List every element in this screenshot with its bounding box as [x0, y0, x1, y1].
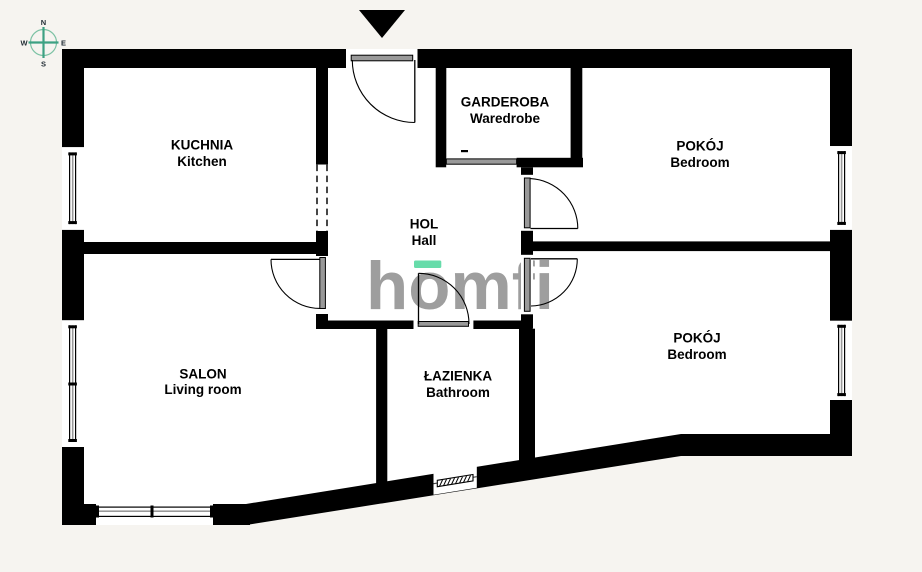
- svg-text:Hall: Hall: [412, 233, 437, 248]
- svg-text:N: N: [41, 18, 46, 27]
- svg-text:Waredrobe: Waredrobe: [470, 111, 541, 126]
- svg-text:GARDEROBA: GARDEROBA: [461, 95, 550, 110]
- svg-text:POKÓJ: POKÓJ: [676, 139, 723, 154]
- svg-text:S: S: [41, 60, 46, 69]
- svg-text:Kitchen: Kitchen: [177, 154, 227, 169]
- svg-text:Living room: Living room: [164, 382, 241, 397]
- svg-text:ŁAZIENKA: ŁAZIENKA: [424, 369, 492, 384]
- svg-text:E: E: [61, 39, 66, 48]
- svg-text:Bathroom: Bathroom: [426, 385, 490, 400]
- svg-text:W: W: [20, 39, 28, 48]
- svg-text:Bedroom: Bedroom: [670, 155, 729, 170]
- svg-text:POKÓJ: POKÓJ: [673, 331, 720, 346]
- svg-text:HOL: HOL: [410, 217, 439, 232]
- svg-text:Bedroom: Bedroom: [667, 347, 726, 362]
- svg-text:KUCHNIA: KUCHNIA: [171, 138, 233, 153]
- svg-text:SALON: SALON: [179, 367, 226, 382]
